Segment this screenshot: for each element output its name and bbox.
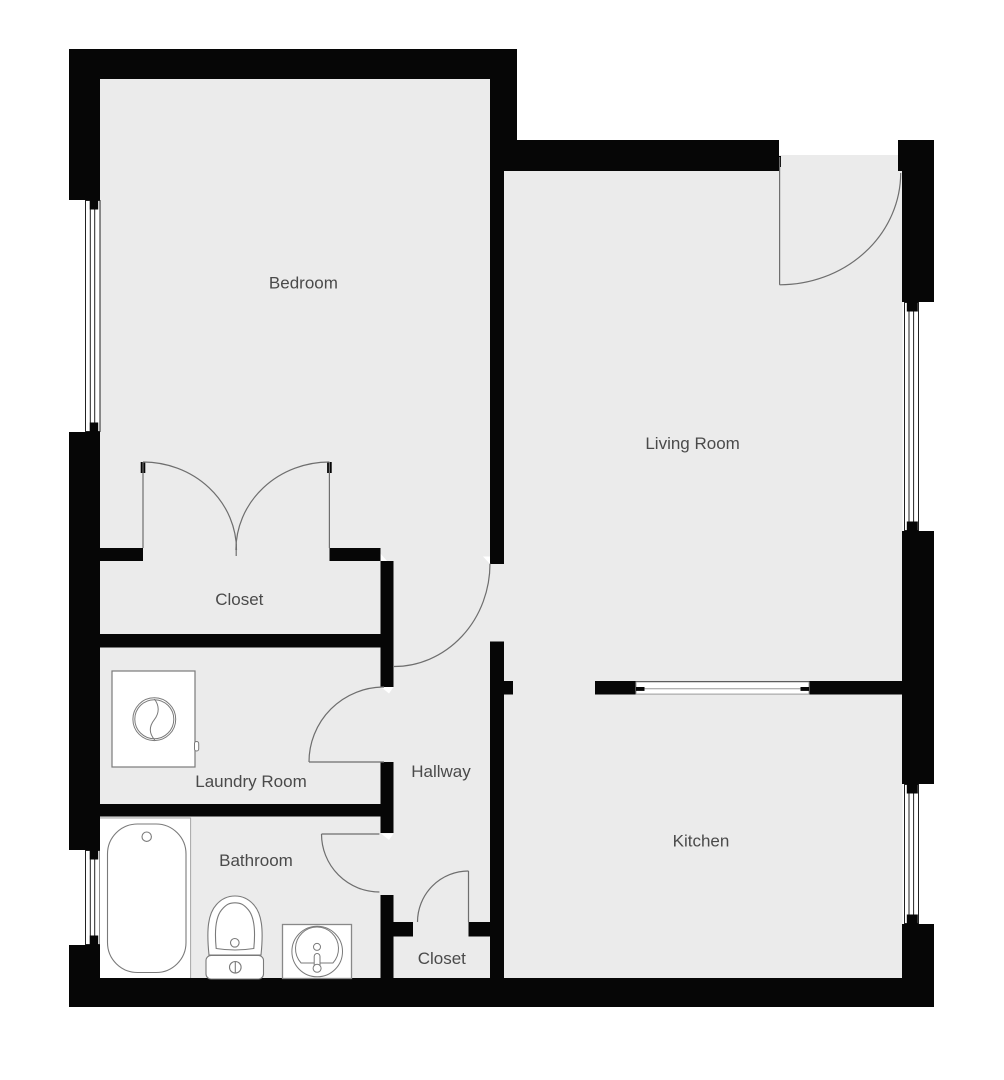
svg-text:Closet: Closet xyxy=(215,590,263,609)
svg-text:Bathroom: Bathroom xyxy=(219,851,293,870)
svg-text:Hallway: Hallway xyxy=(411,762,471,781)
svg-text:Laundry Room: Laundry Room xyxy=(195,772,307,791)
svg-text:Kitchen: Kitchen xyxy=(673,831,730,850)
svg-text:Closet: Closet xyxy=(418,949,466,968)
svg-text:Living Room: Living Room xyxy=(645,434,740,453)
svg-text:Bedroom: Bedroom xyxy=(269,273,338,292)
